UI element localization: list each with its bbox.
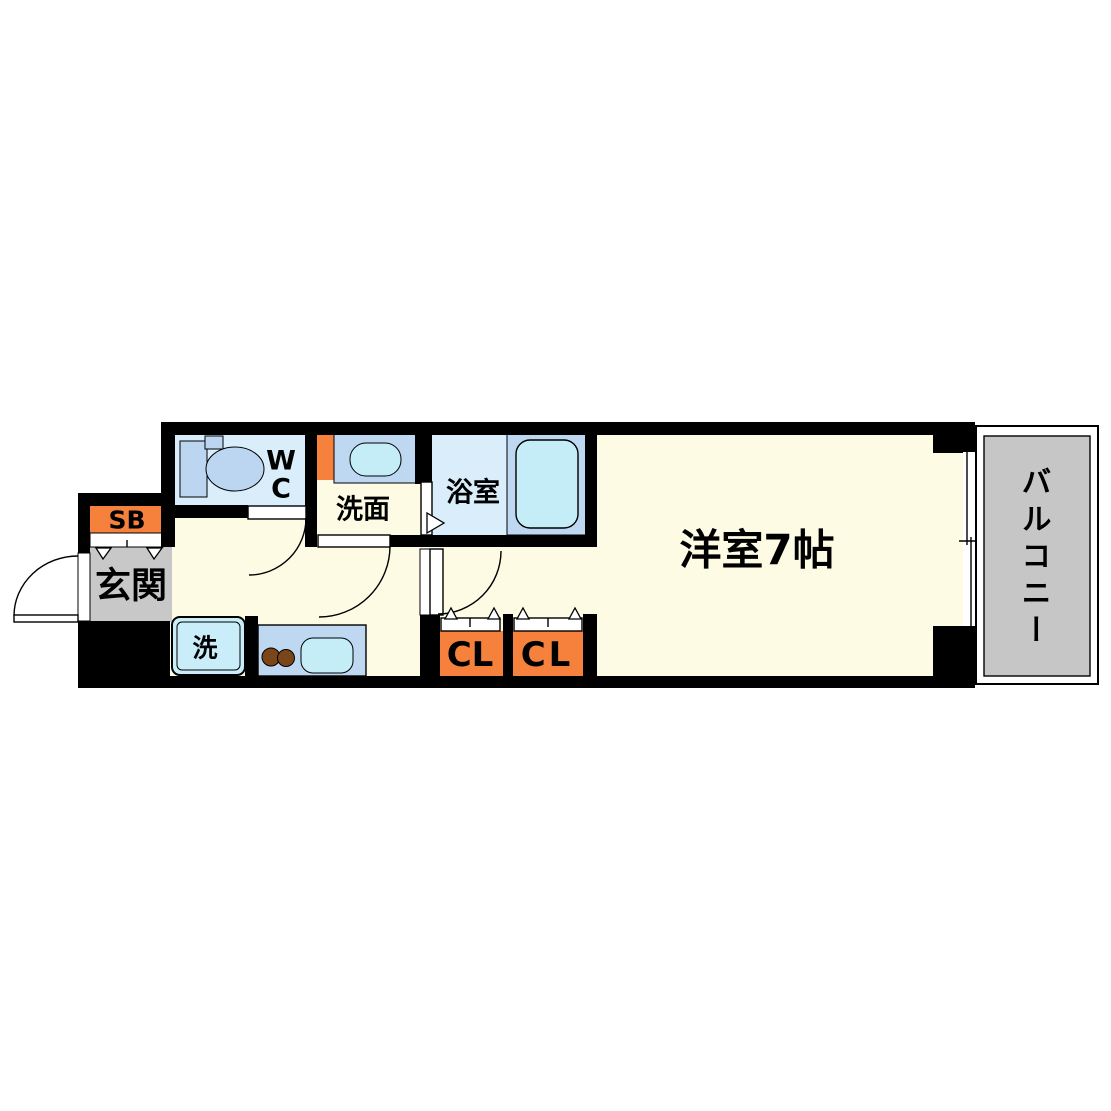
floor-plan-canvas: SB 玄関 W C 洗面 浴室 洗 CL CL 洋室7帖 バルコニー <box>0 0 1111 1111</box>
toilet-label-line2: C <box>271 474 291 505</box>
shoe-box-label: SB <box>108 506 145 535</box>
wall-segment <box>78 676 975 688</box>
room-door-leaf <box>430 549 443 615</box>
wall-segment <box>933 626 975 681</box>
wall-segment <box>161 422 175 547</box>
wall-segment <box>245 616 258 676</box>
toilet-label-line1: W <box>266 446 296 477</box>
wall-segment <box>583 614 597 676</box>
vanity-sink-icon <box>350 443 401 476</box>
washroom-label: 洗面 <box>336 495 390 526</box>
washroom-door-leaf <box>318 535 390 547</box>
front-door-opening <box>78 553 90 621</box>
closet-right-label: CL <box>521 635 574 675</box>
wall-segment <box>420 614 440 676</box>
balcony-window-opening <box>963 452 976 626</box>
wall-segment <box>78 493 175 506</box>
wall-segment <box>305 422 317 547</box>
front-door-leaf <box>14 615 78 622</box>
toilet-cistern-icon <box>205 436 223 449</box>
western-room-label: 洋室7帖 <box>679 526 834 575</box>
stove-burner-icon <box>278 650 295 667</box>
kitchen-sink-icon <box>301 638 353 673</box>
bathroom-label: 浴室 <box>446 477 500 509</box>
washroom-area <box>317 432 422 483</box>
wall-segment <box>161 505 248 518</box>
wall-segment <box>418 535 597 547</box>
balcony-label: バルコニー <box>1016 466 1051 651</box>
bathtub-icon <box>516 440 578 528</box>
washer-label: 洗 <box>192 634 217 663</box>
wall-segment <box>933 422 975 453</box>
wall-segment <box>163 422 975 435</box>
wall-segment <box>503 614 513 676</box>
closet-left-label: CL <box>447 635 494 675</box>
wall-segment <box>415 422 432 484</box>
wall-segment <box>585 422 597 547</box>
floor-plan-drawing: SB 玄関 W C 洗面 浴室 洗 CL CL 洋室7帖 バルコニー <box>0 0 1111 1111</box>
toilet-bowl-icon <box>206 447 264 491</box>
toilet-door-leaf <box>248 506 306 519</box>
pipe-space-marker <box>317 435 334 480</box>
wall-segment <box>78 621 170 683</box>
entrance-label: 玄関 <box>95 566 167 607</box>
toilet-tank-icon <box>180 441 207 497</box>
